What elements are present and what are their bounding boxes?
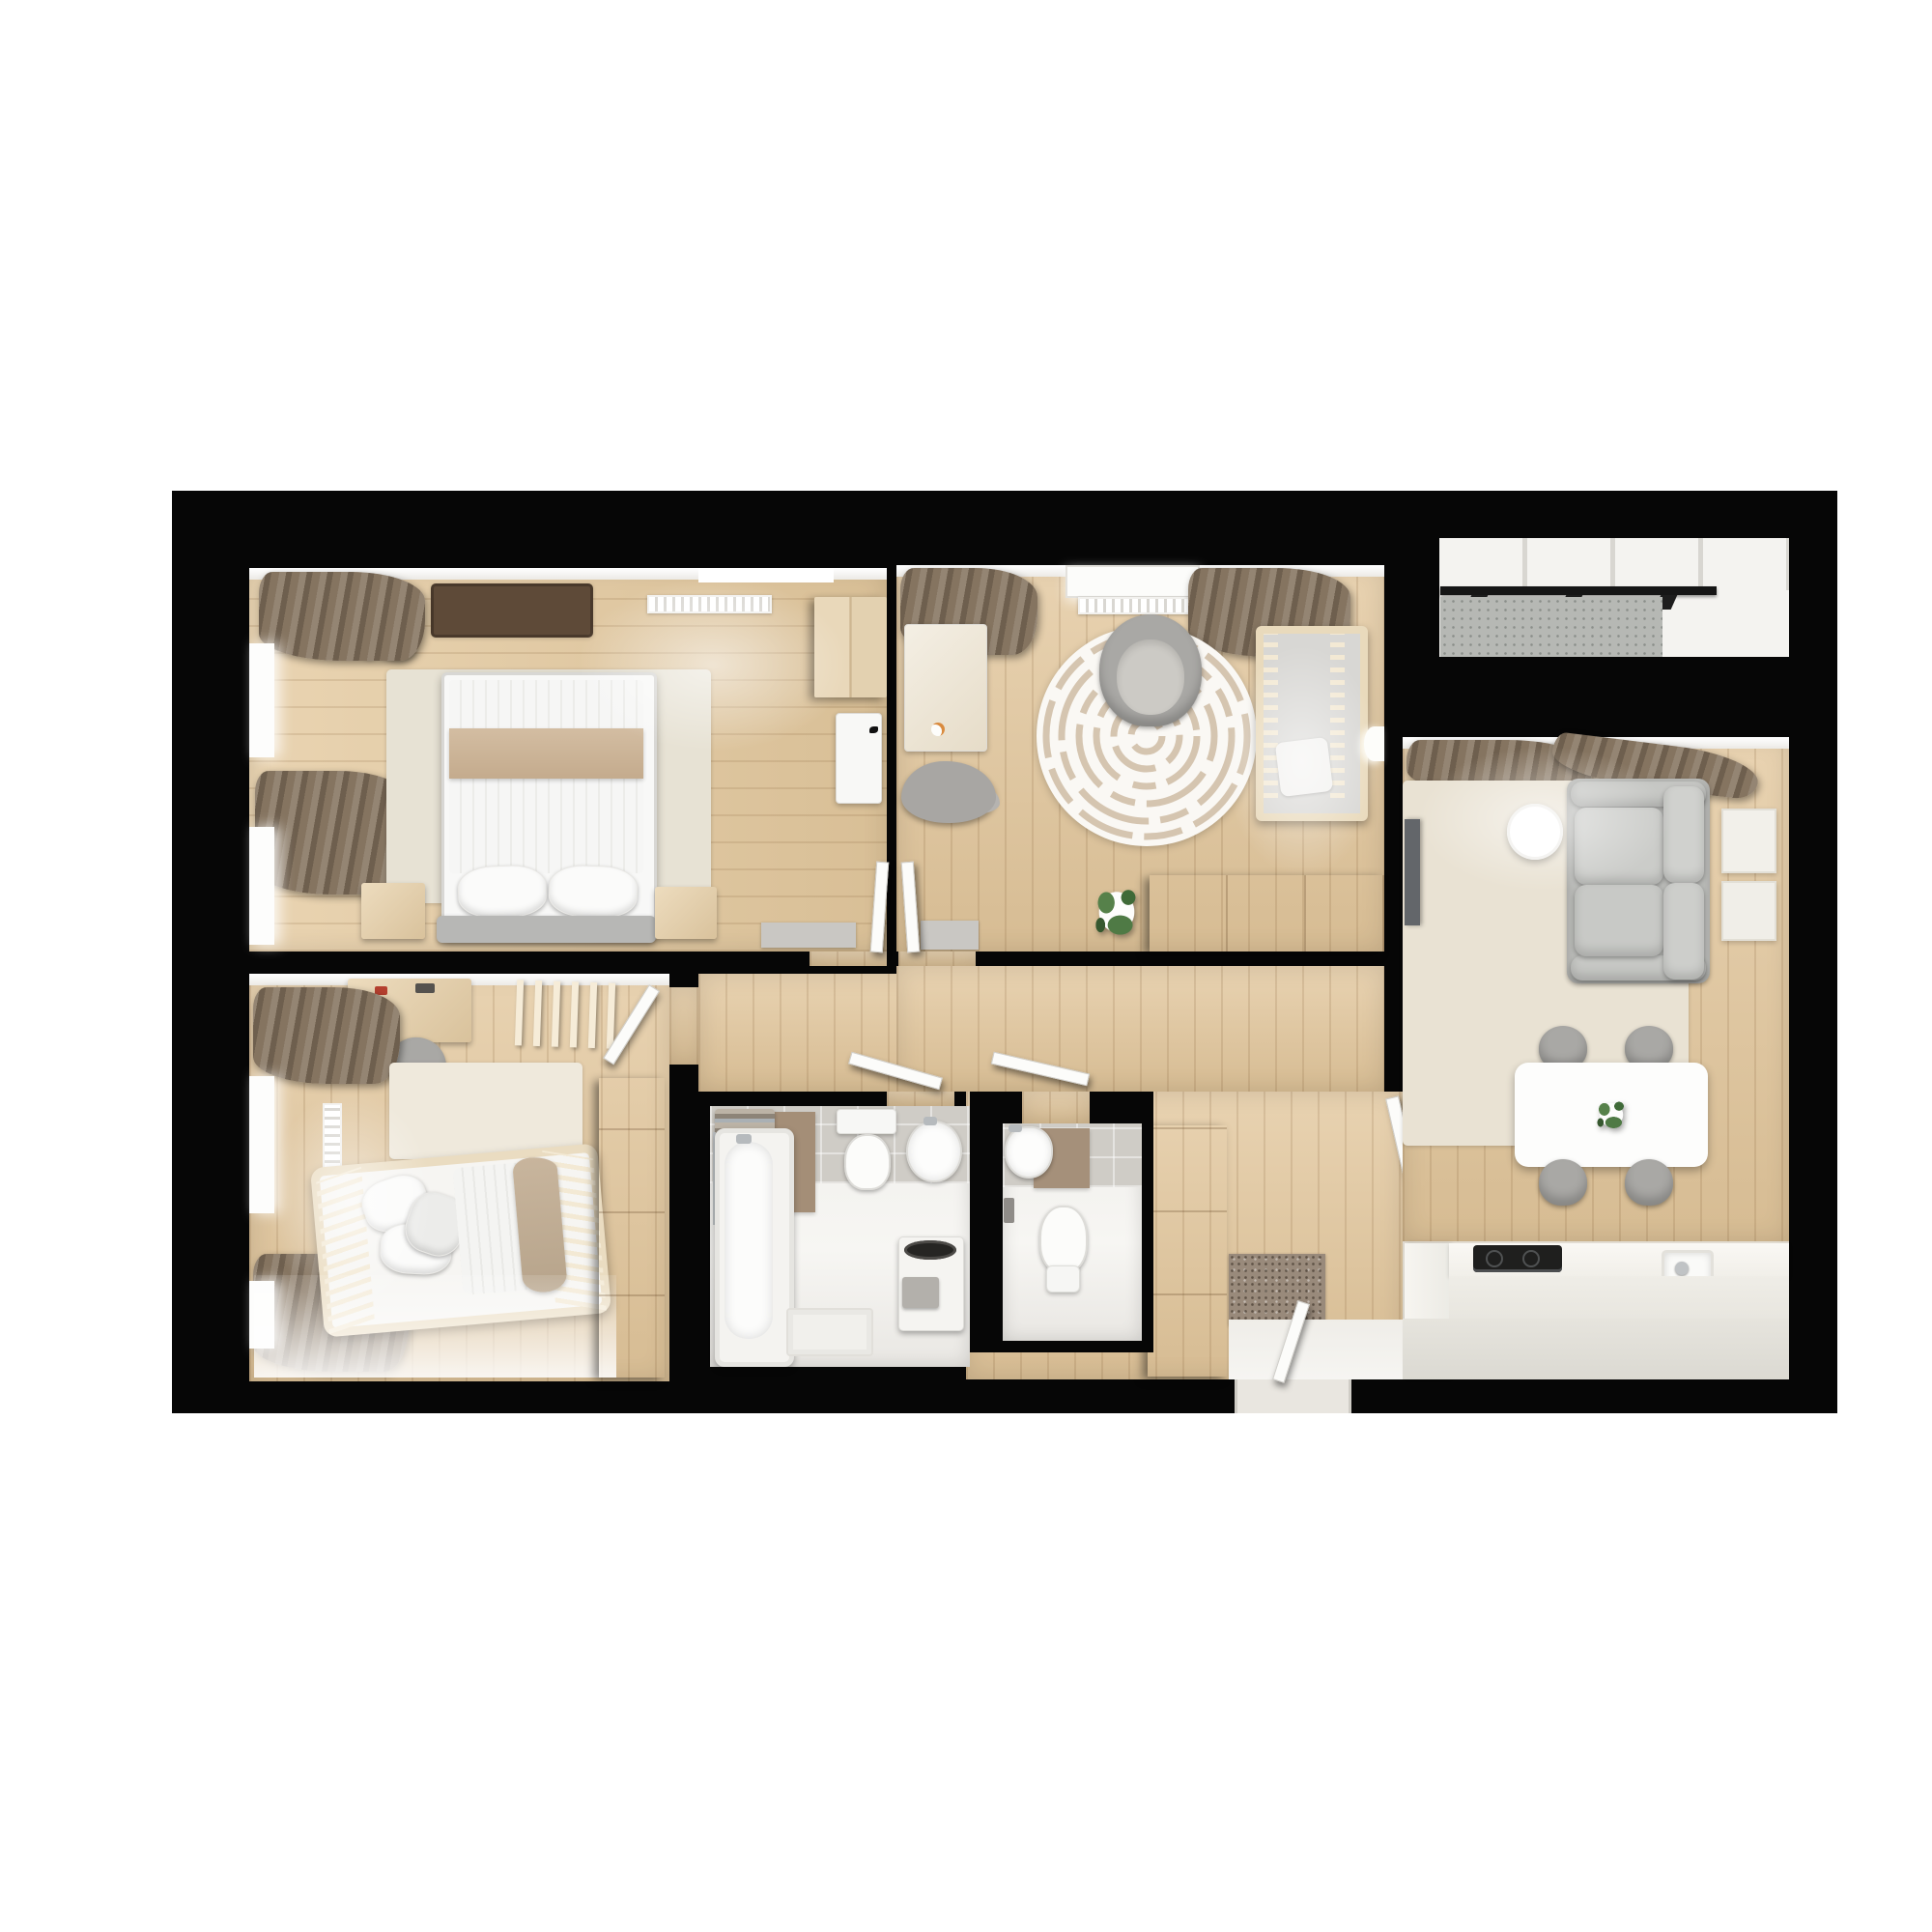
kids-wardrobe (599, 1078, 665, 1378)
floor-plan (172, 491, 1837, 1413)
master-headboard (437, 916, 656, 943)
kitchen-cooktop-burner-2 (1522, 1250, 1540, 1267)
nursery-crib-slats-left (1264, 634, 1278, 798)
nursery-crib-slats-right (1330, 634, 1345, 798)
kids-window-1 (249, 1076, 274, 1213)
kids-ladder-rack (515, 980, 617, 1049)
master-nightstand-right (655, 887, 717, 939)
master-bed-folded-blanket (449, 728, 643, 779)
bathroom-bath-mat (786, 1308, 873, 1356)
entrance-door-threshold (1235, 1379, 1351, 1413)
nursery-crib-blanket (1275, 737, 1333, 797)
hall-entry-white-floor (1229, 1320, 1403, 1379)
wc-paper-holder (1004, 1198, 1014, 1223)
master-nightstand-left (361, 883, 425, 939)
nursery-door-mat (921, 921, 979, 950)
kitchen-counter-front (1449, 1276, 1789, 1319)
bathroom-washer-towel (902, 1277, 939, 1308)
nursery-changing-dresser (904, 624, 987, 752)
master-radiator (647, 595, 772, 613)
master-window-light (698, 568, 834, 582)
hall-entry-doormat (1229, 1254, 1325, 1325)
master-dark-mat (431, 583, 593, 638)
nursery-duck-toy (931, 723, 945, 736)
living-art-frame-1 (1721, 809, 1776, 873)
threshold-nursery-door (898, 952, 976, 966)
living-tv (1405, 819, 1420, 925)
dining-chair-4 (1625, 1159, 1673, 1206)
threshold-wc-door (1022, 1092, 1090, 1123)
bathroom-sink (906, 1121, 962, 1182)
nursery-radiator (1078, 597, 1190, 614)
dining-chair-3 (1539, 1159, 1587, 1206)
living-side-table (1507, 804, 1563, 860)
wc-toilet-base (1046, 1265, 1080, 1293)
kitchen-floor-shadow (1403, 1319, 1789, 1379)
nursery-plant (1088, 879, 1146, 945)
master-window-1 (249, 643, 274, 757)
wc-sink (1005, 1126, 1053, 1179)
living-sofa-seat-1 (1575, 808, 1663, 885)
master-pillow-left (457, 864, 548, 919)
bathroom-bathtub-basin (724, 1142, 773, 1339)
master-curtain-top (259, 572, 425, 661)
nursery-wall-lamp (1364, 726, 1384, 761)
bathroom-toilet-bowl (844, 1134, 891, 1190)
dining-table-plant (1592, 1095, 1631, 1134)
kids-radiator (323, 1103, 342, 1171)
nursery-sideboard (1150, 875, 1384, 952)
living-sofa-back-cushion-1 (1663, 786, 1704, 883)
balcony-glazing (1439, 538, 1789, 590)
master-wardrobe (814, 597, 887, 697)
master-curtain-left (255, 771, 408, 895)
hall-wardrobe (1148, 1125, 1227, 1377)
threshold-bathroom-door (887, 1092, 954, 1106)
wc-toilet-bowl (1039, 1206, 1088, 1273)
bathroom-toilet-tank (837, 1109, 896, 1134)
threshold-master-door (810, 952, 887, 966)
threshold-kids-door (669, 987, 698, 1065)
page: { "scene": { "kind": "3d-floor-plan-rend… (0, 0, 1932, 1932)
kids-desk-item-dark (415, 983, 435, 993)
wc-sink-tap (1009, 1124, 1022, 1132)
master-pillow-right (548, 864, 639, 919)
living-sofa-seat-2 (1575, 885, 1663, 956)
kids-headboard-panel (389, 1063, 582, 1159)
nursery-window-sill (1065, 565, 1200, 598)
balcony-railing (1440, 586, 1717, 595)
kids-curtain-top (253, 987, 400, 1084)
kitchen-faucet (1675, 1262, 1689, 1275)
hall-corridor-center (896, 966, 1384, 1092)
kitchen-cooktop-burner-1 (1486, 1250, 1503, 1267)
bathroom-washer-drum (904, 1240, 956, 1260)
living-sofa-back-cushion-2 (1663, 883, 1704, 980)
balcony-concrete-deck (1440, 597, 1662, 657)
kids-floor-light (254, 1275, 616, 1378)
bathroom-sink-tap (923, 1117, 937, 1125)
nursery-armchair-cushion (1117, 639, 1184, 715)
master-window-2 (249, 827, 274, 945)
living-art-frame-2 (1721, 881, 1776, 941)
master-door-mat (761, 923, 856, 948)
master-wall-hook (869, 726, 878, 733)
bathroom-tub-faucet (736, 1134, 752, 1144)
